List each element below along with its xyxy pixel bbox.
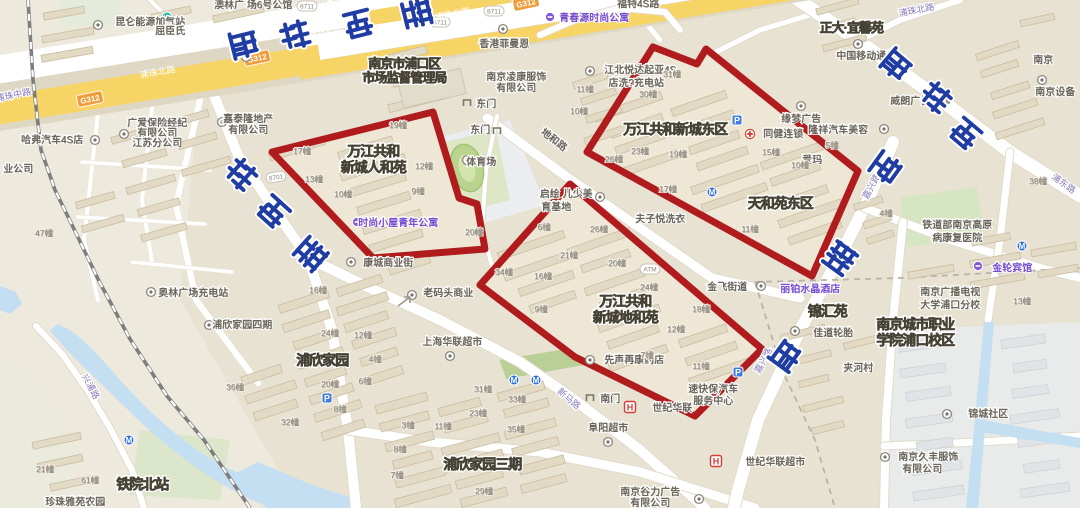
svg-text:29幢: 29幢 — [476, 487, 494, 497]
svg-text:30幢: 30幢 — [640, 90, 658, 100]
svg-text:学院浦口校区: 学院浦口校区 — [876, 333, 955, 349]
svg-text:锦汇苑: 锦汇苑 — [808, 304, 848, 320]
svg-text:6幢: 6幢 — [538, 223, 552, 233]
svg-text:16幢: 16幢 — [310, 286, 328, 296]
svg-text:7幢: 7幢 — [391, 471, 405, 481]
svg-text:浦欣家园: 浦欣家园 — [296, 353, 349, 369]
svg-text:新城地和苑: 新城地和苑 — [593, 310, 659, 326]
svg-text:铁道部南京高原: 铁道部南京高原 — [923, 219, 993, 232]
svg-text:M: M — [533, 376, 540, 385]
svg-text:8幢: 8幢 — [394, 445, 408, 455]
svg-text:速快保汽车: 速快保汽车 — [689, 383, 739, 396]
svg-text:正大·宜馨苑: 正大·宜馨苑 — [819, 21, 883, 36]
svg-text:世纪华联超市: 世纪华联超市 — [746, 456, 806, 469]
svg-text:老码头商业: 老码头商业 — [424, 287, 474, 300]
svg-text:61幢: 61幢 — [82, 476, 100, 486]
svg-text:31幢: 31幢 — [664, 70, 682, 80]
svg-text:时尚小屋青年公寓: 时尚小屋青年公寓 — [359, 217, 439, 230]
svg-text:佳道轮胎: 佳道轮胎 — [814, 327, 854, 340]
svg-text:金轮宾馆: 金轮宾馆 — [993, 262, 1033, 275]
svg-text:南京: 南京 — [1034, 54, 1054, 67]
svg-text:4幢: 4幢 — [369, 355, 383, 365]
svg-text:病康复医院: 病康复医院 — [933, 232, 983, 245]
svg-text:19幢: 19幢 — [670, 150, 688, 160]
svg-text:13幢: 13幢 — [1014, 297, 1032, 307]
svg-text:店洗?充电站: 店洗?充电站 — [609, 77, 665, 90]
svg-text:南京谷力广告: 南京谷力广告 — [621, 486, 681, 499]
svg-text:东门: 东门 — [477, 98, 497, 111]
svg-text:5幢: 5幢 — [826, 141, 840, 151]
svg-text:35幢: 35幢 — [508, 425, 526, 435]
svg-text:23幢: 23幢 — [470, 409, 488, 419]
svg-text:M: M — [511, 376, 518, 385]
svg-text:9幢: 9幢 — [535, 305, 549, 315]
svg-text:屈臣氏: 屈臣氏 — [156, 26, 186, 38]
svg-text:上海华联超市: 上海华联超市 — [423, 336, 483, 349]
svg-text:10幢: 10幢 — [335, 190, 353, 200]
svg-text:启绘 儿少美: 启绘 儿少美 — [540, 188, 593, 201]
svg-text:21幢: 21幢 — [561, 251, 579, 261]
svg-text:育基地: 育基地 — [542, 201, 572, 214]
svg-text:34幢: 34幢 — [496, 268, 514, 278]
svg-text:H: H — [627, 403, 634, 413]
svg-text:20幢: 20幢 — [322, 380, 340, 390]
svg-text:13幢: 13幢 — [306, 175, 324, 185]
svg-text:万江共和: 万江共和 — [346, 144, 399, 160]
svg-text:大学浦口分校: 大学浦口分校 — [921, 299, 981, 312]
svg-text:31幢: 31幢 — [475, 385, 493, 395]
svg-text:M: M — [126, 436, 133, 445]
svg-text:江苏分公司: 江苏分公司 — [133, 137, 183, 150]
svg-text:8幢: 8幢 — [334, 405, 348, 415]
svg-text:丽铂水晶酒店: 丽铂水晶酒店 — [781, 283, 841, 296]
svg-text:17幢: 17幢 — [294, 147, 312, 157]
svg-text:3幢: 3幢 — [402, 421, 416, 431]
svg-text:12幢: 12幢 — [668, 325, 686, 335]
svg-text:26幢: 26幢 — [591, 225, 609, 235]
svg-text:万江共和: 万江共和 — [598, 294, 651, 310]
svg-text:有限公司: 有限公司 — [903, 463, 943, 476]
svg-text:15幢: 15幢 — [763, 148, 781, 158]
svg-text:M: M — [1019, 242, 1026, 251]
svg-text:金飞街道: 金飞街道 — [708, 281, 748, 294]
svg-text:4幢: 4幢 — [880, 209, 894, 219]
svg-text:南京广播电视: 南京广播电视 — [921, 286, 981, 299]
svg-text:珍珠雅苑农园: 珍珠雅苑农园 — [46, 496, 106, 508]
svg-text:阜阳超市: 阜阳超市 — [589, 422, 629, 435]
svg-text:南京凌康服饰: 南京凌康服饰 — [487, 71, 547, 84]
svg-text:P: P — [734, 115, 740, 125]
svg-text:26幢: 26幢 — [606, 155, 624, 165]
svg-text:23幢: 23幢 — [632, 147, 650, 157]
svg-text:有限公司: 有限公司 — [631, 497, 671, 508]
svg-text:浦欣家园三期: 浦欣家园三期 — [443, 457, 522, 473]
svg-text:H: H — [713, 457, 720, 467]
svg-text:11幢: 11幢 — [693, 362, 711, 372]
svg-text:南门: 南门 — [601, 393, 621, 406]
svg-text:47幢: 47幢 — [36, 229, 54, 239]
svg-text:10幢: 10幢 — [792, 161, 810, 171]
svg-text:浦欣家园四期: 浦欣家园四期 — [213, 319, 273, 332]
svg-text:有限公司: 有限公司 — [497, 82, 537, 95]
svg-text:天和苑东区: 天和苑东区 — [748, 196, 814, 212]
svg-text:奥林广场充电站: 奥林广场充电站 — [159, 287, 229, 300]
svg-text:隆祥汽车美容: 隆祥汽车美容 — [809, 124, 869, 137]
svg-text:体育场: 体育场 — [467, 156, 497, 169]
svg-text:铁院北站: 铁院北站 — [116, 477, 169, 493]
svg-text:先声再康药店: 先声再康药店 — [605, 354, 665, 367]
svg-text:16幢: 16幢 — [535, 272, 553, 282]
svg-text:12幢: 12幢 — [416, 162, 434, 172]
svg-text:24幢: 24幢 — [641, 283, 659, 293]
svg-text:ATM: ATM — [643, 267, 656, 274]
svg-text:20幢: 20幢 — [609, 259, 627, 269]
svg-text:18幢: 18幢 — [693, 305, 711, 315]
svg-text:20幢: 20幢 — [466, 228, 484, 238]
svg-text:24幢: 24幢 — [322, 329, 340, 339]
svg-text:世纪华联: 世纪华联 — [653, 402, 693, 415]
svg-text:夫子悦洗衣: 夫子悦洗衣 — [636, 213, 686, 226]
svg-text:17幢: 17幢 — [660, 185, 678, 195]
svg-text:21幢: 21幢 — [37, 465, 55, 475]
svg-text:10幢: 10幢 — [571, 107, 589, 117]
svg-text:36幢: 36幢 — [227, 383, 245, 393]
svg-text:11幢: 11幢 — [435, 422, 453, 432]
svg-text:澳林广 场6号公馆: 澳林广 场6号公馆 — [214, 0, 292, 12]
svg-text:东门: 东门 — [471, 124, 491, 137]
svg-text:市场监督管理局: 市场监督管理局 — [362, 71, 447, 86]
svg-text:万江共和新城东区: 万江共和新城东区 — [622, 122, 728, 138]
svg-text:嘉泰隆地产: 嘉泰隆地产 — [224, 113, 274, 126]
svg-text:业公司: 业公司 — [4, 164, 34, 176]
svg-text:香港菲曼恩: 香港菲曼恩 — [480, 39, 530, 51]
svg-text:38幢: 38幢 — [1030, 177, 1048, 187]
svg-text:锦城社区: 锦城社区 — [969, 408, 1009, 421]
svg-text:7幢: 7幢 — [641, 351, 655, 361]
svg-text:11幢: 11幢 — [577, 85, 595, 95]
svg-text:青春源时尚公寓: 青春源时尚公寓 — [560, 12, 630, 25]
svg-text:南京城市职业: 南京城市职业 — [876, 317, 955, 333]
svg-text:12幢: 12幢 — [355, 331, 373, 341]
svg-text:P: P — [735, 367, 741, 377]
svg-text:缘梦广告: 缘梦广告 — [782, 113, 822, 126]
svg-text:19幢: 19幢 — [390, 121, 408, 131]
svg-text:8711: 8711 — [300, 4, 314, 11]
svg-text:福特4S路: 福特4S路 — [617, 0, 659, 11]
svg-text:6幢: 6幢 — [359, 377, 373, 387]
svg-text:33幢: 33幢 — [509, 395, 527, 405]
svg-text:康城商业街: 康城商业街 — [364, 257, 414, 270]
svg-text:南京久丰服饰: 南京久丰服饰 — [899, 451, 959, 464]
svg-text:M: M — [709, 188, 716, 197]
svg-text:同健连锁: 同健连锁 — [764, 128, 804, 141]
svg-text:11幢: 11幢 — [742, 225, 760, 235]
svg-text:新城人和苑: 新城人和苑 — [341, 160, 407, 176]
svg-text:夹河村: 夹河村 — [844, 362, 874, 375]
svg-text:9幢: 9幢 — [412, 187, 426, 197]
svg-text:哈弗汽车4S店: 哈弗汽车4S店 — [21, 134, 83, 147]
svg-text:服务中心: 服务中心 — [694, 395, 734, 408]
svg-text:有限公司: 有限公司 — [229, 124, 269, 137]
svg-text:32幢: 32幢 — [282, 418, 300, 428]
svg-text:8711: 8711 — [487, 9, 501, 16]
svg-text:南京设备: 南京设备 — [1036, 86, 1076, 99]
svg-text:P: P — [324, 393, 330, 403]
